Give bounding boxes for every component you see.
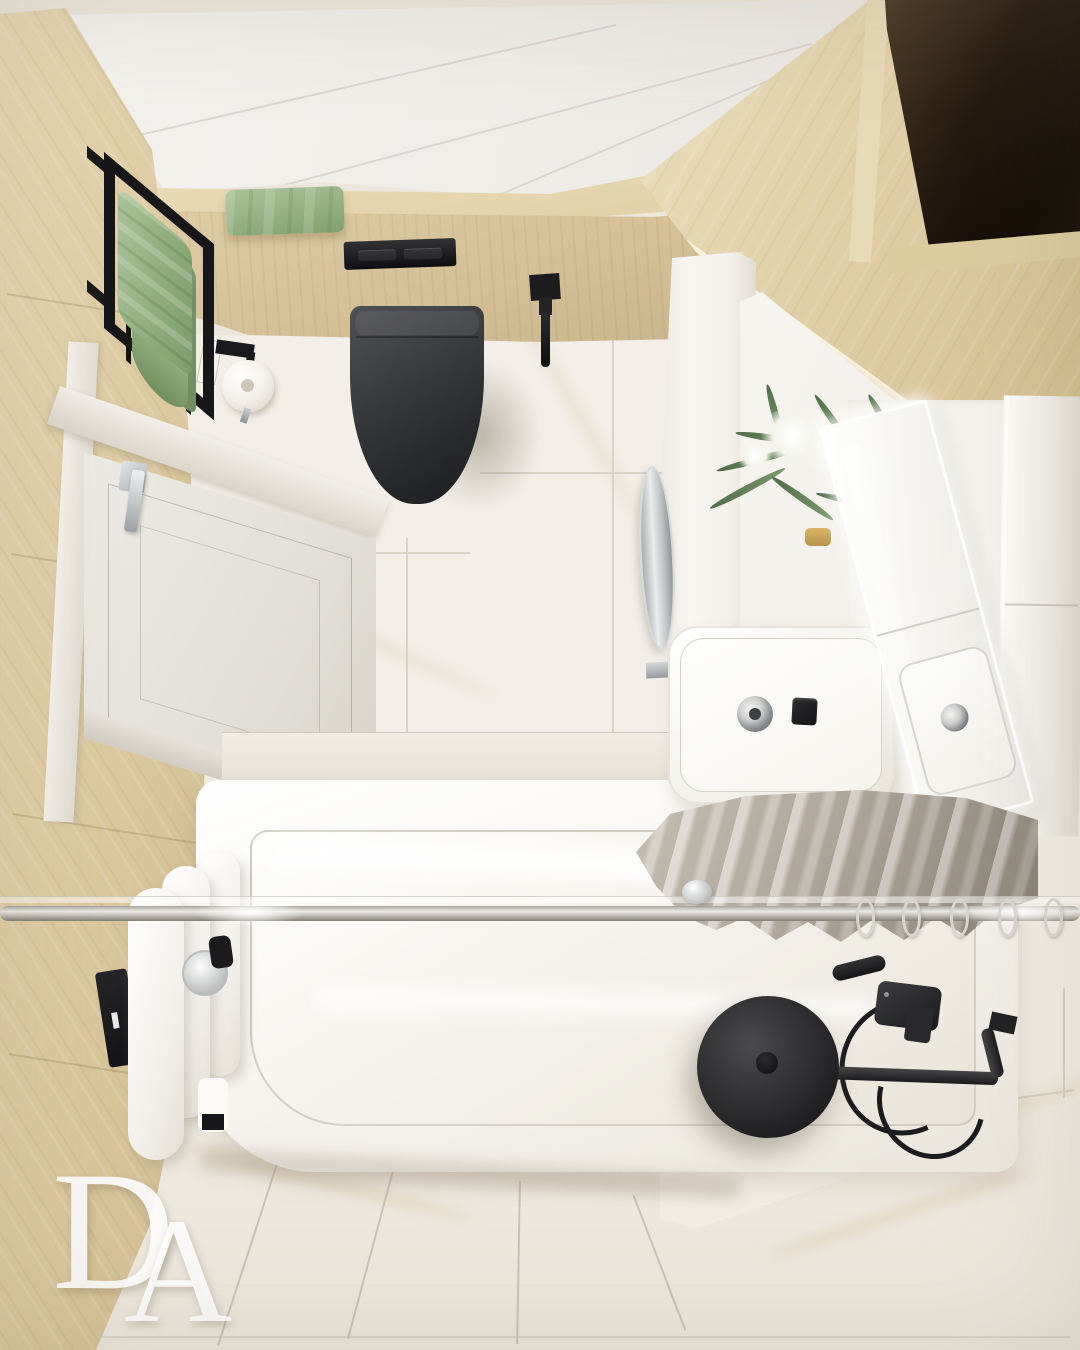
white-flowers: [735, 440, 775, 470]
towel-folds: [225, 186, 345, 236]
rail-ring: [856, 898, 875, 937]
rail-ring: [1044, 898, 1063, 937]
flush-button[interactable]: [358, 249, 396, 261]
cabinet-seam: [1004, 603, 1078, 606]
plant-leaf: [770, 474, 835, 523]
washbasin-bowl: [680, 638, 882, 792]
flush-plate[interactable]: [344, 238, 457, 270]
wall-grout-line: [1063, 988, 1065, 1098]
drain-hole: [749, 708, 761, 720]
toilet-paper-core: [241, 379, 254, 392]
flower-vase: [805, 528, 831, 546]
radiator-knob[interactable]: [208, 935, 234, 970]
washbasin: [668, 626, 894, 804]
scene: D A: [0, 0, 1080, 1350]
hand-shower-bracket: [904, 1004, 935, 1043]
basin-drain: [737, 696, 773, 732]
hygienic-sprayer[interactable]: [541, 313, 550, 367]
green-towel-on-ledge: [225, 186, 345, 236]
wall-grout-line: [612, 310, 614, 798]
plant-leaf: [708, 465, 786, 511]
toilet-lid: [355, 311, 479, 335]
glass-screen-edge: [0, 896, 1080, 903]
floor-grout-line: [80, 1336, 1070, 1338]
rack-rail: [203, 235, 214, 420]
rail-ring: [950, 898, 969, 937]
mixer-screw: [884, 992, 889, 997]
bottle-label: [202, 1114, 224, 1130]
rail-ring: [902, 898, 921, 937]
ceiling-seam: [70, 24, 616, 152]
shower-head-hub: [756, 1052, 778, 1074]
radiator-slat: [128, 888, 184, 1160]
black-faucet[interactable]: [791, 697, 817, 725]
rail-ring: [998, 898, 1017, 937]
flush-button[interactable]: [404, 248, 442, 260]
glass-screen-knob: [682, 880, 712, 904]
rack-rail: [104, 152, 115, 337]
toilet-lid-seam: [356, 336, 478, 338]
rod-glare: [195, 897, 305, 927]
